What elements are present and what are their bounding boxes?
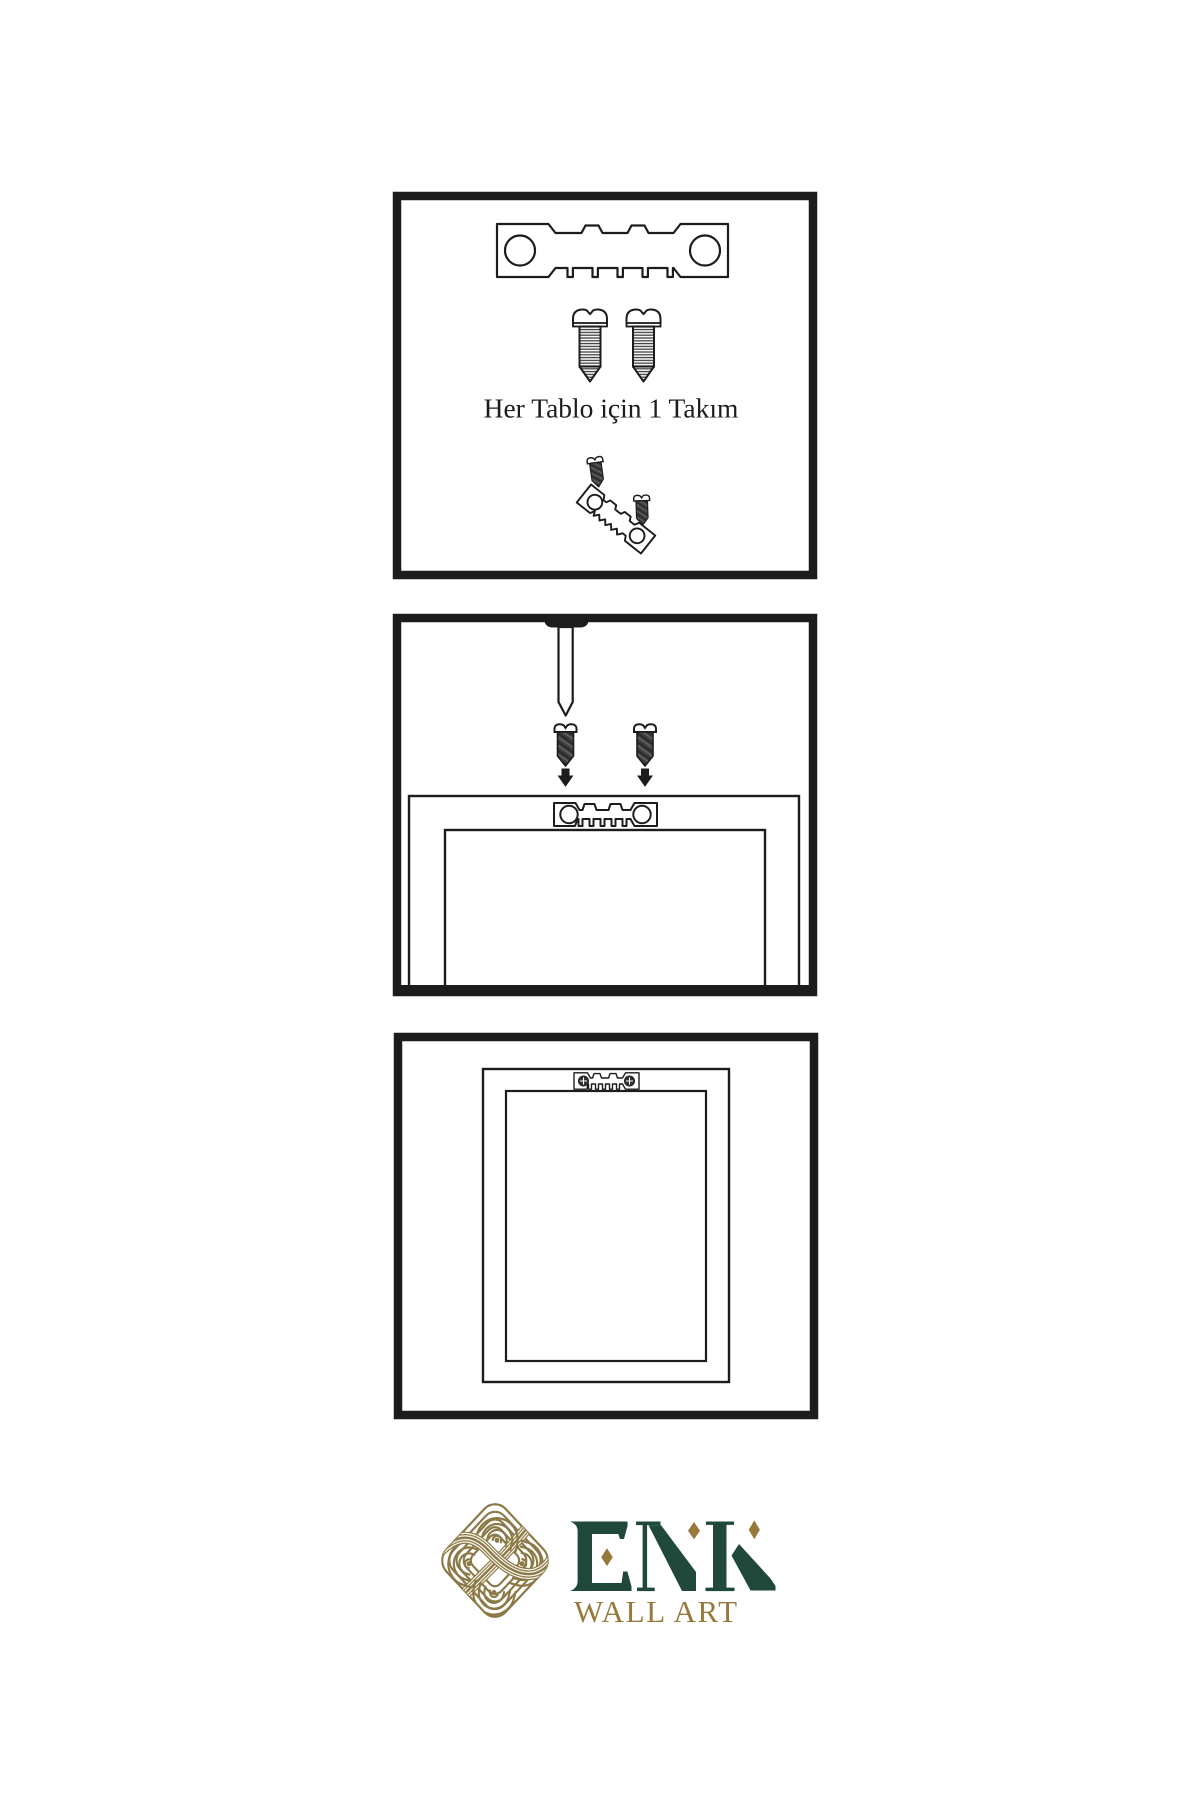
svg-text:Her Tablo için 1 Takım: Her Tablo için 1 Takım xyxy=(484,393,739,424)
svg-text:WALL ART: WALL ART xyxy=(574,1594,738,1629)
